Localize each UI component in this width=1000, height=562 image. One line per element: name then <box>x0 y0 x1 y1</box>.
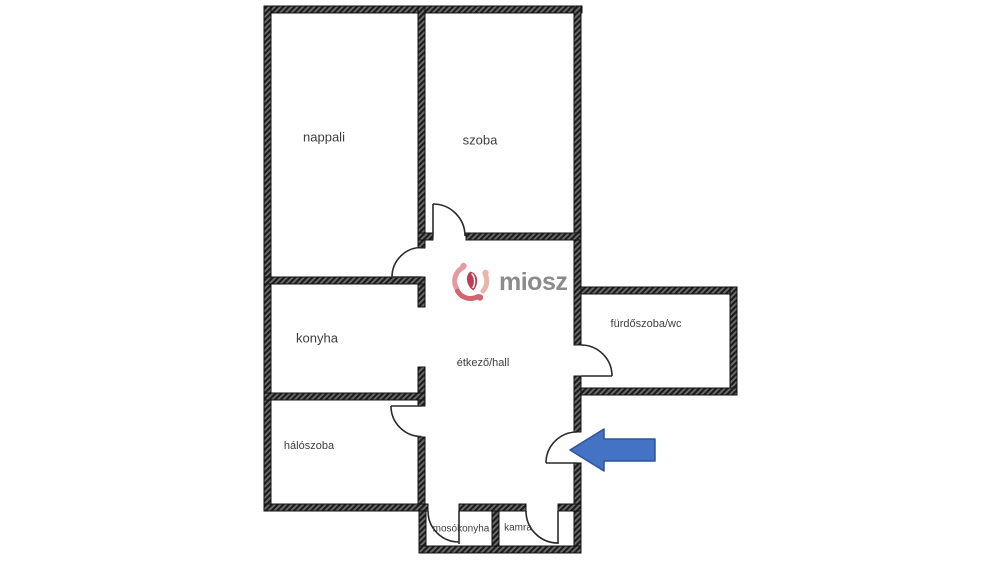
room-label-haloszoba: hálószoba <box>284 440 334 452</box>
wall-bathroom-right <box>730 287 737 395</box>
door-nappali <box>392 248 422 278</box>
wall-szoba-bottom-left <box>418 233 433 240</box>
watermark-brand-text: miosz <box>499 270 567 295</box>
room-label-kamra: kamra <box>504 523 532 534</box>
wall-center-lower <box>418 437 425 511</box>
entrance-arrow <box>570 429 655 471</box>
wall-bottom-left <box>264 504 428 511</box>
wall-bottom-right <box>558 504 581 511</box>
floorplan-canvas: nappali szoba konyha étkező/hall fürdősz… <box>0 0 1000 562</box>
door-entrance <box>546 432 577 463</box>
door-szoba <box>433 204 465 236</box>
wall-right-upper <box>574 6 581 345</box>
wall-left <box>264 6 271 511</box>
wall-nappali-bottom <box>264 277 425 284</box>
wall-konyha-bottom <box>264 393 425 400</box>
door-bathroom <box>581 345 612 376</box>
wall-bottom-mid <box>459 504 526 511</box>
wall-bathroom-bottom <box>581 388 737 395</box>
room-label-mosokonyha: mosókonyha <box>433 524 490 535</box>
room-label-etkezo-hall: étkező/hall <box>457 357 510 369</box>
room-label-szoba: szoba <box>463 133 498 148</box>
wall-bathroom-top <box>581 287 737 294</box>
watermark-logo: miosz <box>449 260 567 304</box>
wall-right-mid <box>574 376 581 432</box>
room-label-nappali: nappali <box>303 130 345 145</box>
door-bedroom <box>391 406 422 437</box>
room-label-konyha: konyha <box>296 331 338 346</box>
wall-strip-bottom <box>419 546 581 553</box>
room-label-furdoszoba-wc: fürdőszoba/wc <box>611 318 682 330</box>
wall-center-upper <box>418 6 425 248</box>
wall-szoba-bottom-right <box>466 233 581 240</box>
miosz-logo-icon <box>449 260 493 304</box>
